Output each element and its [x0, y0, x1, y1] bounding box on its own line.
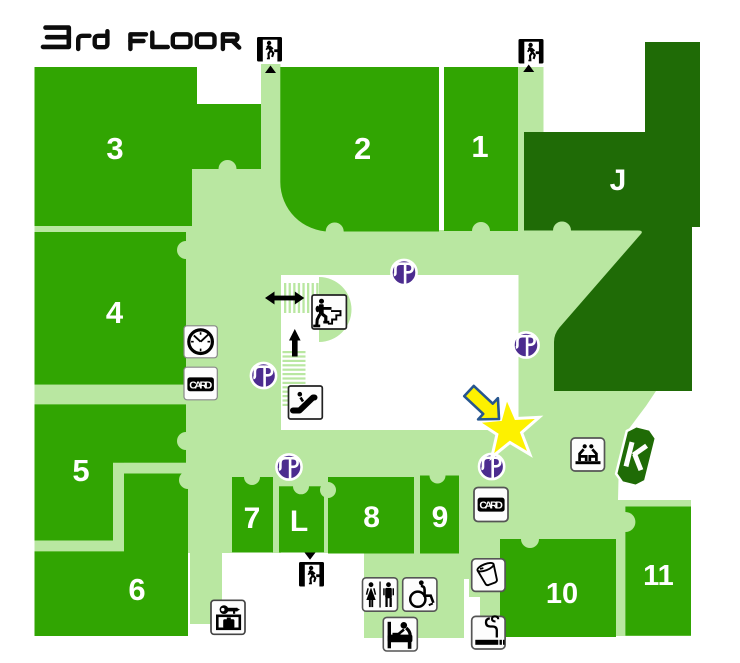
- svg-text:10: 10: [546, 578, 578, 610]
- svg-text:2: 2: [354, 131, 371, 166]
- svg-text:4: 4: [106, 295, 124, 330]
- svg-text:J: J: [610, 164, 627, 197]
- svg-text:3: 3: [106, 131, 123, 166]
- svg-text:1: 1: [471, 129, 488, 164]
- svg-text:7: 7: [244, 502, 261, 535]
- svg-text:CARD: CARD: [479, 500, 503, 512]
- svg-text:6: 6: [128, 572, 145, 607]
- svg-text:11: 11: [643, 560, 674, 592]
- svg-text:8: 8: [363, 501, 380, 534]
- svg-text:9: 9: [432, 501, 449, 534]
- svg-text:5: 5: [72, 453, 89, 488]
- svg-text:CARD: CARD: [189, 379, 212, 391]
- svg-text:L: L: [290, 505, 308, 538]
